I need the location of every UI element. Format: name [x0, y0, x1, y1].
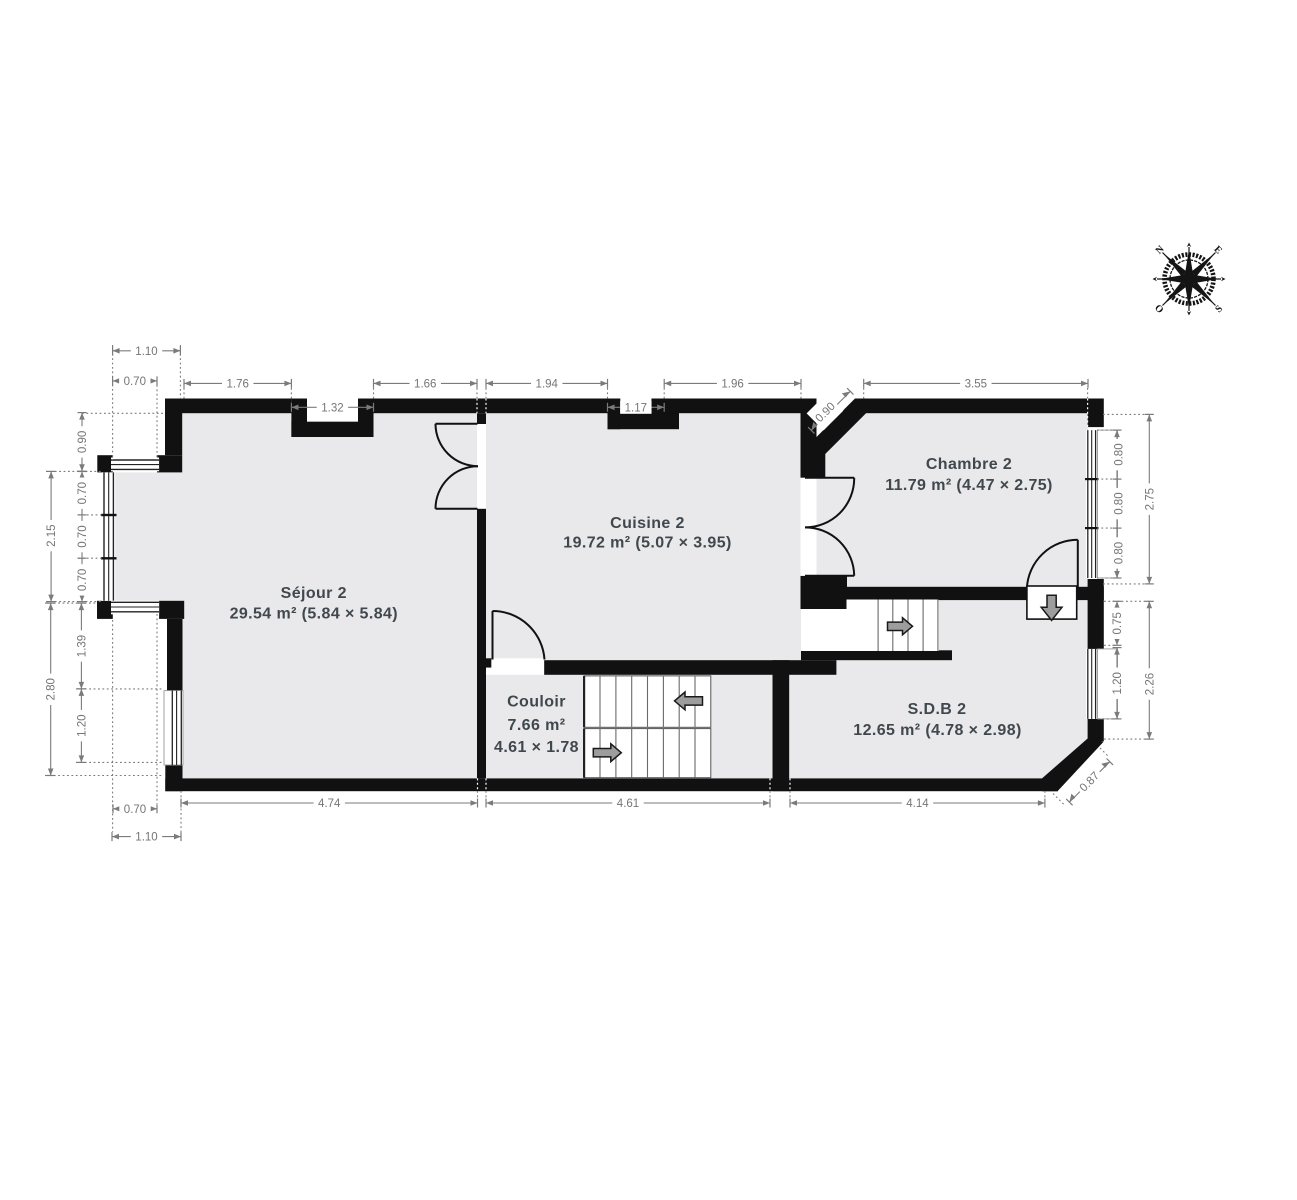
svg-text:0.80: 0.80: [1114, 443, 1126, 465]
svg-text:0.70: 0.70: [77, 569, 89, 591]
svg-text:Chambre 2: Chambre 2: [926, 456, 1012, 473]
svg-text:Cuisine 2: Cuisine 2: [610, 515, 685, 532]
svg-text:1.17: 1.17: [625, 402, 647, 414]
svg-text:29.54 m² (5.84 × 5.84): 29.54 m² (5.84 × 5.84): [230, 606, 398, 623]
svg-text:0.70: 0.70: [77, 482, 89, 504]
svg-text:1.76: 1.76: [227, 378, 249, 390]
svg-text:4.14: 4.14: [906, 798, 929, 810]
svg-text:4.74: 4.74: [318, 798, 341, 810]
svg-text:0.70: 0.70: [77, 525, 89, 547]
svg-text:4.61: 4.61: [617, 798, 639, 810]
svg-text:19.72 m² (5.07 × 3.95): 19.72 m² (5.07 × 3.95): [563, 535, 731, 552]
svg-text:2.75: 2.75: [1144, 488, 1156, 510]
svg-text:1.32: 1.32: [321, 402, 343, 414]
svg-text:0.70: 0.70: [124, 376, 146, 388]
svg-text:11.79 m² (4.47 × 2.75): 11.79 m² (4.47 × 2.75): [885, 477, 1053, 494]
svg-text:2.26: 2.26: [1144, 673, 1156, 695]
svg-text:1.10: 1.10: [135, 832, 157, 844]
svg-text:0.90: 0.90: [77, 431, 89, 453]
svg-text:1.94: 1.94: [536, 378, 559, 390]
svg-text:3.55: 3.55: [965, 378, 987, 390]
svg-text:2.80: 2.80: [46, 678, 58, 700]
svg-text:Séjour 2: Séjour 2: [281, 585, 347, 602]
svg-text:1.20: 1.20: [76, 714, 88, 736]
svg-text:4.61 × 1.78: 4.61 × 1.78: [494, 739, 579, 756]
svg-text:Couloir: Couloir: [507, 694, 566, 711]
svg-text:2.15: 2.15: [46, 524, 58, 546]
svg-text:1.39: 1.39: [76, 635, 88, 657]
svg-text:1.96: 1.96: [721, 378, 743, 390]
svg-text:0.70: 0.70: [124, 804, 146, 816]
svg-text:1.10: 1.10: [135, 346, 157, 358]
svg-text:0.80: 0.80: [1114, 542, 1126, 564]
svg-text:0.80: 0.80: [1114, 492, 1126, 514]
svg-text:1.20: 1.20: [1112, 672, 1124, 694]
svg-text:12.65 m² (4.78 × 2.98): 12.65 m² (4.78 × 2.98): [853, 722, 1021, 739]
svg-text:S.D.B 2: S.D.B 2: [908, 701, 967, 718]
svg-text:1.66: 1.66: [414, 378, 436, 390]
svg-text:7.66 m²: 7.66 m²: [508, 717, 566, 734]
svg-text:0.75: 0.75: [1112, 612, 1124, 634]
